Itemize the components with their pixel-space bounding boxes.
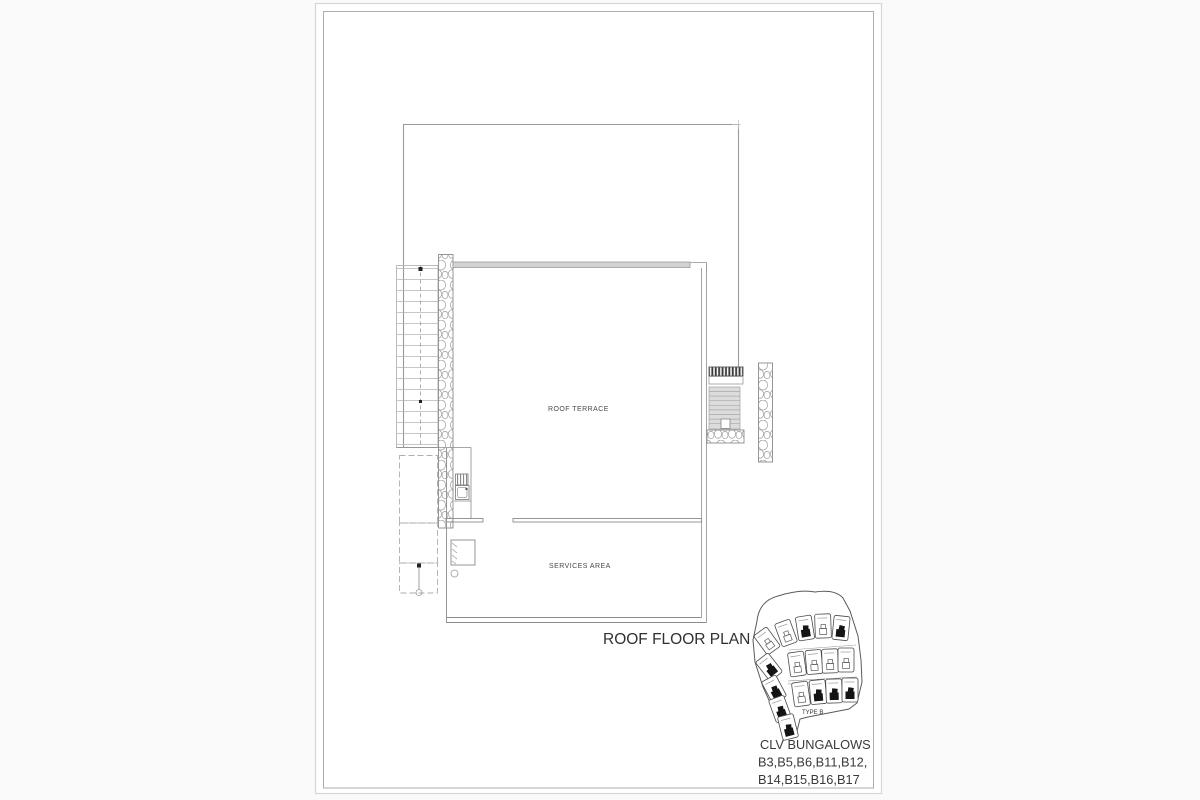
louver-grille (709, 367, 743, 376)
stair-start-dot (419, 267, 423, 271)
stone-wall-strip (759, 363, 773, 462)
caption-line-1: CLV BUNGALOWS (760, 737, 871, 752)
key-plan-caption: CLV BUNGALOWS B3,B5,B6,B11,B12, B14,B15,… (758, 737, 871, 787)
key-plan-lot (822, 649, 839, 674)
stone-wall-stair (439, 255, 454, 529)
key-plan-lot-highlighted (795, 615, 815, 641)
key-plan-lot (805, 649, 823, 674)
floor-plan-drawing: ROOF TERRACE SERVICES AREA ROOF FLOOR PL… (0, 0, 1200, 800)
stair-mid-dot (419, 400, 422, 403)
key-plan-lot (815, 614, 832, 639)
key-plan-lot-highlighted (809, 679, 827, 704)
key-plan-lot-highlighted (826, 679, 843, 704)
roof-terrace-label: ROOF TERRACE (548, 406, 609, 413)
grille-unit (456, 474, 469, 485)
key-plan-lot (787, 651, 806, 677)
caption-line-3: B14,B15,B16,B17 (758, 772, 860, 787)
caption-line-2: B3,B5,B6,B11,B12, (758, 755, 867, 770)
plan-title: ROOF FLOOR PLAN (603, 631, 750, 648)
type-label: TYPE B (802, 710, 823, 716)
shaft-access-hatch (721, 419, 730, 429)
key-plan-lot (791, 681, 810, 707)
faucet-dot (465, 488, 467, 490)
drawing-viewer: ROOF TERRACE SERVICES AREA ROOF FLOOR PL… (0, 0, 1200, 800)
stone-band (707, 430, 744, 443)
services-area-label: SERVICES AREA (549, 563, 611, 570)
key-plan-lot-highlighted (842, 678, 858, 702)
key-plan-lot-highlighted (832, 615, 850, 641)
kitchen-sink (456, 486, 470, 500)
key-plan-lot (838, 648, 854, 672)
